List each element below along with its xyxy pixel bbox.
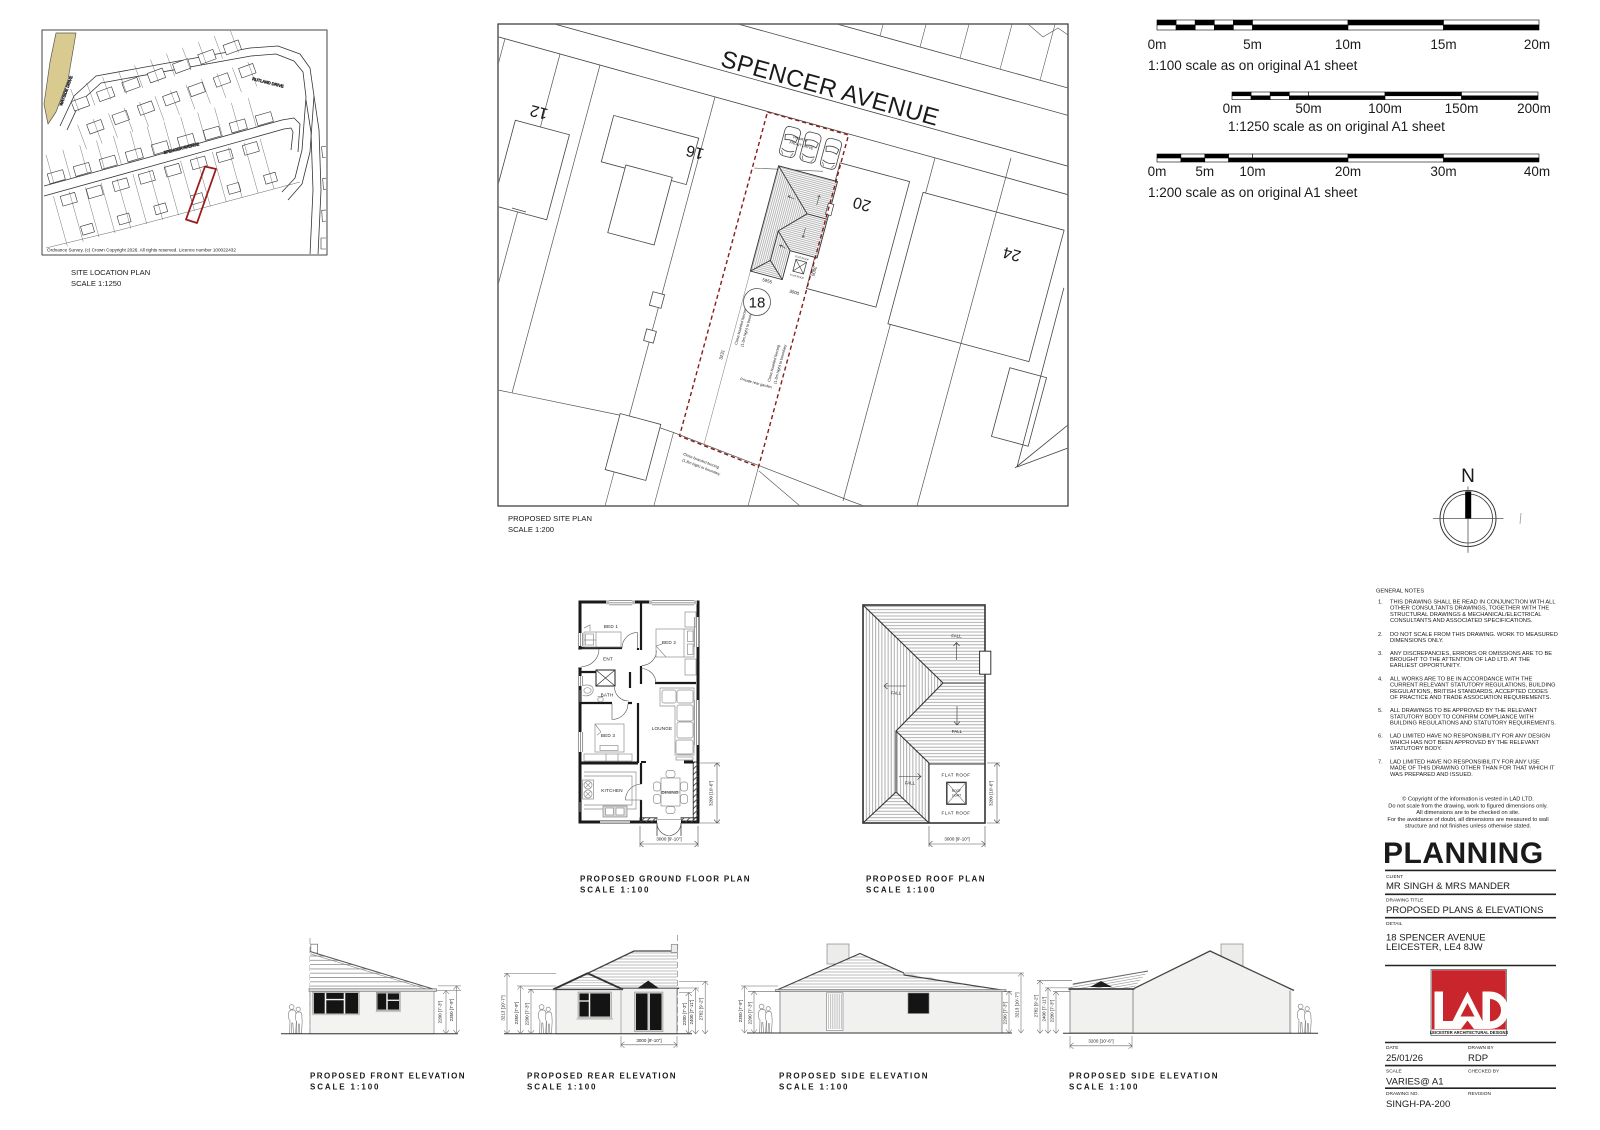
svg-text:MR SINGH & MRS MANDER: MR SINGH & MRS MANDER <box>1386 881 1510 892</box>
svg-text:0m: 0m <box>1148 37 1167 52</box>
svg-text:FALL: FALL <box>905 781 916 786</box>
svg-text:2200 [7'-3"]: 2200 [7'-3"] <box>525 1003 530 1026</box>
svg-text:3000 [9'-10"]: 3000 [9'-10"] <box>636 1038 661 1043</box>
svg-text:STRUCTURAL DRAWINGS & MECHANIC: STRUCTURAL DRAWINGS & MECHANICAL/ELECTRI… <box>1390 612 1542 618</box>
svg-text:5m: 5m <box>1195 164 1214 179</box>
svg-text:SCALE 1:100: SCALE 1:100 <box>779 1083 849 1092</box>
svg-text:FALL: FALL <box>891 691 902 696</box>
svg-text:2.: 2. <box>1378 632 1383 638</box>
svg-text:MADE OF THIS DRAWING OTHER THA: MADE OF THIS DRAWING OTHER THAN FOR THAT… <box>1390 766 1555 772</box>
svg-text:LAD LIMITED HAVE NO RESPONSIBI: LAD LIMITED HAVE NO RESPONSIBILITY FOR A… <box>1390 734 1550 740</box>
svg-text:2200 [7'-3"]: 2200 [7'-3"] <box>748 1002 753 1025</box>
svg-text:LIGHT: LIGHT <box>952 794 961 798</box>
svg-text:2400 [7'-11"]: 2400 [7'-11"] <box>689 1000 694 1025</box>
svg-text:3200 [10'-6"]: 3200 [10'-6"] <box>989 781 994 806</box>
svg-text:SCALE 1:100: SCALE 1:100 <box>527 1083 597 1092</box>
svg-text:STATUTORY BODY TO CONFIRM COMP: STATUTORY BODY TO CONFIRM COMPLIANCE WIT… <box>1390 714 1534 720</box>
svg-text:2200 [7'-3"]: 2200 [7'-3"] <box>1003 1002 1008 1025</box>
svg-text:1:100 scale as on original A1: 1:100 scale as on original A1 sheet <box>1148 58 1358 73</box>
svg-text:PROPOSED ROOF PLAN: PROPOSED ROOF PLAN <box>866 875 986 884</box>
svg-text:REVISION: REVISION <box>1468 1091 1491 1097</box>
svg-text:OF PRACTICE AND TRADE ASSOCIAT: OF PRACTICE AND TRADE ASSOCIATION REQUIR… <box>1390 695 1551 701</box>
svg-text:2350 [7'-9"]: 2350 [7'-9"] <box>514 1002 519 1025</box>
svg-text:20m: 20m <box>1335 164 1361 179</box>
svg-text:PROPOSED REAR ELEVATION: PROPOSED REAR ELEVATION <box>527 1072 677 1081</box>
svg-text:DINING: DINING <box>661 790 679 795</box>
svg-text:6.: 6. <box>1378 734 1383 740</box>
svg-text:2350 [7'-9"]: 2350 [7'-9"] <box>738 1000 743 1023</box>
svg-text:100m: 100m <box>1368 101 1402 116</box>
svg-text:LEICESTER, LE4 8JW: LEICESTER, LE4 8JW <box>1386 942 1483 953</box>
svg-text:SINGH-PA-200: SINGH-PA-200 <box>1386 1099 1450 1110</box>
svg-text:REGULATIONS, BRITISH STANDARDS: REGULATIONS, BRITISH STANDARDS, ACCEPTED… <box>1390 689 1548 695</box>
svg-text:PROPOSED SIDE ELEVATION: PROPOSED SIDE ELEVATION <box>779 1072 929 1081</box>
svg-text:4.: 4. <box>1378 676 1383 682</box>
svg-text:WHICH HAS NOT BEEN APPROVED BY: WHICH HAS NOT BEEN APPROVED BY THE RELEV… <box>1390 740 1540 746</box>
svg-text:18: 18 <box>749 295 766 312</box>
svg-text:BUILDING REGULATIONS AND STATU: BUILDING REGULATIONS AND STATUTORY REQUI… <box>1390 721 1556 727</box>
svg-text:FLAT ROOF: FLAT ROOF <box>942 773 971 778</box>
svg-text:structure and not finishes unl: structure and not finishes unless otherw… <box>1405 824 1532 830</box>
svg-text:1.: 1. <box>1378 600 1383 606</box>
svg-text:DETAIL: DETAIL <box>1386 921 1403 927</box>
svg-text:3200 [10'-6"]: 3200 [10'-6"] <box>709 781 714 806</box>
svg-text:15m: 15m <box>1430 37 1456 52</box>
svg-text:3213 [10'-7"]: 3213 [10'-7"] <box>501 995 506 1020</box>
svg-text:PROPOSED GROUND FLOOR PLAN: PROPOSED GROUND FLOOR PLAN <box>580 875 751 884</box>
svg-text:CLIENT: CLIENT <box>1386 874 1403 880</box>
svg-text:200m: 200m <box>1517 101 1551 116</box>
svg-text:Ordnance Survey, (c) Crown Cop: Ordnance Survey, (c) Crown Copyright 202… <box>47 248 236 253</box>
svg-text:LOUNGE: LOUNGE <box>652 726 673 731</box>
svg-text:KITCHEN: KITCHEN <box>601 788 623 793</box>
svg-text:ALL WORKS ARE TO BE IN ACCORDA: ALL WORKS ARE TO BE IN ACCORDANCE WITH T… <box>1390 676 1533 682</box>
svg-text:2782 [9'-2"]: 2782 [9'-2"] <box>1034 995 1039 1018</box>
svg-text:All dimensions are to be check: All dimensions are to be checked on site… <box>1416 810 1520 816</box>
svg-text:FALL: FALL <box>952 729 963 734</box>
svg-text:PROPOSED SITE PLAN: PROPOSED SITE PLAN <box>508 514 592 523</box>
svg-text:BATH: BATH <box>601 693 614 698</box>
svg-text:40m: 40m <box>1524 164 1550 179</box>
svg-text:BED 2: BED 2 <box>662 640 677 645</box>
svg-text:WAS PREPARED AND ISSUED.: WAS PREPARED AND ISSUED. <box>1390 772 1473 778</box>
svg-text:EARLIEST OPPORTUNITY.: EARLIEST OPPORTUNITY. <box>1390 663 1461 669</box>
svg-text:5m: 5m <box>1243 37 1262 52</box>
svg-text:DATE: DATE <box>1386 1045 1398 1051</box>
svg-text:LAD LIMITED HAVE NO RESPONSIBI: LAD LIMITED HAVE NO RESPONSIBILITY FOR A… <box>1390 759 1540 765</box>
svg-text:DRAWING NO.: DRAWING NO. <box>1386 1091 1419 1097</box>
svg-text:2400 [7'-11"]: 2400 [7'-11"] <box>1042 997 1047 1022</box>
svg-text:BED 1: BED 1 <box>604 624 619 629</box>
svg-text:Do not scale from the drawing,: Do not scale from the drawing, work to f… <box>1388 803 1548 809</box>
svg-text:BROUGHT TO THE ATTENTION OF LA: BROUGHT TO THE ATTENTION OF LAD LTD. AT … <box>1390 657 1530 663</box>
svg-text:PROPOSED PLANS & ELEVATIONS: PROPOSED PLANS & ELEVATIONS <box>1386 905 1544 916</box>
svg-text:VARIES@ A1: VARIES@ A1 <box>1386 1077 1444 1088</box>
svg-text:ANY DISCREPANCIES, ERRORS OR O: ANY DISCREPANCIES, ERRORS OR OMISSIONS A… <box>1390 651 1552 657</box>
svg-text:0m: 0m <box>1223 101 1242 116</box>
svg-text:THIS DRAWING SHALL BE READ IN: THIS DRAWING SHALL BE READ IN CONJUNCTIO… <box>1390 600 1555 606</box>
svg-text:10m: 10m <box>1239 164 1265 179</box>
svg-text:2200 [7'-3"]: 2200 [7'-3"] <box>438 1001 443 1024</box>
svg-text:3213 [10'-7"]: 3213 [10'-7"] <box>1015 992 1020 1017</box>
svg-text:3000 [9'-10"]: 3000 [9'-10"] <box>656 837 681 842</box>
svg-text:ROOF: ROOF <box>952 789 961 793</box>
svg-text:SCALE: SCALE <box>1386 1069 1402 1075</box>
svg-text:DO NOT SCALE FROM THIS DRAWING: DO NOT SCALE FROM THIS DRAWING. WORK TO … <box>1390 632 1558 638</box>
svg-text:BED 3: BED 3 <box>601 733 616 738</box>
svg-text:1:1250 scale as on original A1: 1:1250 scale as on original A1 sheet <box>1228 119 1445 134</box>
svg-text:5.: 5. <box>1378 708 1383 714</box>
svg-text:CHECKED BY: CHECKED BY <box>1468 1069 1500 1075</box>
svg-text:GENERAL NOTES: GENERAL NOTES <box>1376 589 1424 595</box>
svg-text:50m: 50m <box>1295 101 1321 116</box>
svg-text:SCALE 1:100: SCALE 1:100 <box>866 886 936 895</box>
svg-text:30m: 30m <box>1430 164 1456 179</box>
svg-text:SCALE 1:100: SCALE 1:100 <box>310 1083 380 1092</box>
svg-text:SCALE 1:100: SCALE 1:100 <box>580 886 650 895</box>
svg-text:N: N <box>1461 466 1475 487</box>
svg-text:FALL: FALL <box>951 634 962 639</box>
svg-text:10m: 10m <box>1335 37 1361 52</box>
svg-text:SCALE 1:200: SCALE 1:200 <box>508 525 554 534</box>
svg-text:2200 [7'-3"]: 2200 [7'-3"] <box>682 1003 687 1026</box>
svg-text:PROPOSED SIDE ELEVATION: PROPOSED SIDE ELEVATION <box>1069 1072 1219 1081</box>
svg-text:PROPOSED FRONT ELEVATION: PROPOSED FRONT ELEVATION <box>310 1072 466 1081</box>
svg-text:3000 [9'-10"]: 3000 [9'-10"] <box>944 837 969 842</box>
svg-text:DIMENSIONS ONLY.: DIMENSIONS ONLY. <box>1390 638 1444 644</box>
svg-text:ALL DRAWINGS TO BE APPROVED BY: ALL DRAWINGS TO BE APPROVED BY THE RELEV… <box>1390 708 1537 714</box>
svg-text:2350 [7'-9"]: 2350 [7'-9"] <box>449 999 454 1022</box>
svg-text:© Copyright of the information: © Copyright of the information is vested… <box>1402 796 1534 803</box>
svg-text:CONSULTANTS AND ASSOCIATED SPE: CONSULTANTS AND ASSOCIATED SPECIFICATION… <box>1390 618 1533 624</box>
svg-text:3200 [10'-6"]: 3200 [10'-6"] <box>1088 1039 1113 1044</box>
svg-text:25/01/26: 25/01/26 <box>1386 1053 1423 1064</box>
svg-text:ENT: ENT <box>603 657 613 662</box>
svg-text:For the avoidance of doubt, al: For the avoidance of doubt, all dimensio… <box>1387 817 1548 823</box>
svg-text:STATUTORY BODY.: STATUTORY BODY. <box>1390 746 1442 752</box>
svg-text:3.: 3. <box>1378 651 1383 657</box>
svg-text:0m: 0m <box>1148 164 1167 179</box>
svg-text:OTHER CONSULTANTS DRAWINGS, TO: OTHER CONSULTANTS DRAWINGS, TOGETHER WIT… <box>1390 606 1549 612</box>
svg-text:PLANNING: PLANNING <box>1383 837 1544 870</box>
svg-text:2200 [7'-3"]: 2200 [7'-3"] <box>1050 1000 1055 1023</box>
svg-text:150m: 150m <box>1445 101 1479 116</box>
svg-text:SCALE 1:1250: SCALE 1:1250 <box>71 279 121 288</box>
svg-text:CURRENT RELEVANT STATUTORY REG: CURRENT RELEVANT STATUTORY REGULATIONS, … <box>1390 683 1556 689</box>
svg-text:LEICESTER ARCHITECTURAL DESIGN: LEICESTER ARCHITECTURAL DESIGNS <box>1430 1030 1509 1035</box>
svg-text:SITE LOCATION PLAN: SITE LOCATION PLAN <box>71 268 150 277</box>
svg-text:DRAWING TITLE: DRAWING TITLE <box>1386 898 1423 904</box>
svg-text:DRAWN BY: DRAWN BY <box>1468 1045 1494 1051</box>
svg-text:SCALE 1:100: SCALE 1:100 <box>1069 1083 1139 1092</box>
svg-text:1:200 scale as on original A1: 1:200 scale as on original A1 sheet <box>1148 185 1358 200</box>
svg-text:20m: 20m <box>1524 37 1550 52</box>
svg-text:2782 [9'-2"]: 2782 [9'-2"] <box>699 998 704 1021</box>
svg-text:FLAT ROOF: FLAT ROOF <box>942 811 971 816</box>
svg-text:7.: 7. <box>1378 759 1383 765</box>
svg-text:RDP: RDP <box>1468 1053 1488 1064</box>
